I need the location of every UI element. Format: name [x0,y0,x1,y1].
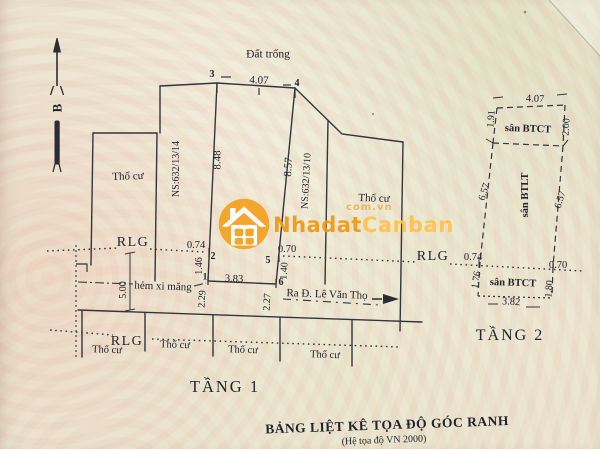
dim-f2-bottom: 3.82 [502,297,521,308]
label-rlg-upper: RLG [117,236,150,250]
title-floor2: TẦNG 2 [476,328,544,344]
dim-f2-rlg-left: 0.74 [464,253,482,264]
scanned-survey-drawing: B Đất trống 3 4.07 4 8.48 8.57 NS:632/13… [0,0,600,449]
dim-f1-alley-left: 2.29 [198,290,209,308]
watermark-brand-second: Canban [362,213,454,237]
watermark-brand-first: Nhadat [273,213,362,237]
watermark: com.vn NhadatCanban [216,196,416,256]
watermark-brand: NhadatCanban [273,213,454,237]
point-5: 5 [266,256,271,266]
street-direction-arrow-icon [372,294,399,304]
house-logo-icon [216,196,272,252]
label-tho-cu-b4: Thổ cư [310,350,340,362]
label-san-btlt: sân BTLT [521,173,532,218]
dim-f2-bottom-right: 1.80 [544,280,555,298]
survey-point-ticks [208,77,295,288]
label-san-btct-bottom: sân BTCT [490,278,537,290]
dim-f1-right: 8.57 [283,157,295,177]
scan-artifacts [372,0,600,115]
point-1: 1 [203,273,208,283]
point-3: 3 [210,70,215,80]
point-4: 4 [295,79,300,89]
label-tho-cu-b3: Thổ cư [228,345,258,357]
dim-f1-bottom: 3.83 [225,274,244,285]
dim-f2-top-right: 2.00 [562,118,573,136]
label-alley: hẻm xi măng [134,281,192,294]
dim-f2-top-left: 1.91 [486,110,497,128]
label-empty-land: Đất trống [246,49,290,61]
label-tho-cu-b1: Thổ cư [92,345,122,357]
dim-f1-top: 4.07 [249,75,269,87]
label-san-btct-top: sân BTCT [505,124,552,136]
point-2: 2 [211,252,216,262]
house-no-left: NS:632/13/14 [172,141,182,197]
dim-f2-top: 4.07 [526,94,545,105]
dim-f1-alley-width: 5.00 [119,281,129,299]
label-tho-cu-b2: Thổ cư [160,340,190,352]
dim-f1-rlg-left: 0.74 [187,241,205,252]
title-floor1: TẦNG 1 [190,379,260,396]
north-letter: B [51,104,64,113]
label-tho-cu-left: Thổ cư [112,171,144,183]
dim-f1-left: 8.48 [213,150,224,169]
dim-f1-alley-right: 2.27 [263,293,274,311]
point-6: 6 [279,278,284,288]
dim-f2-rlg-right: 0.70 [549,261,567,272]
label-rlg-floor2: RLG [417,250,450,264]
watermark-domain: com.vn [346,202,393,213]
